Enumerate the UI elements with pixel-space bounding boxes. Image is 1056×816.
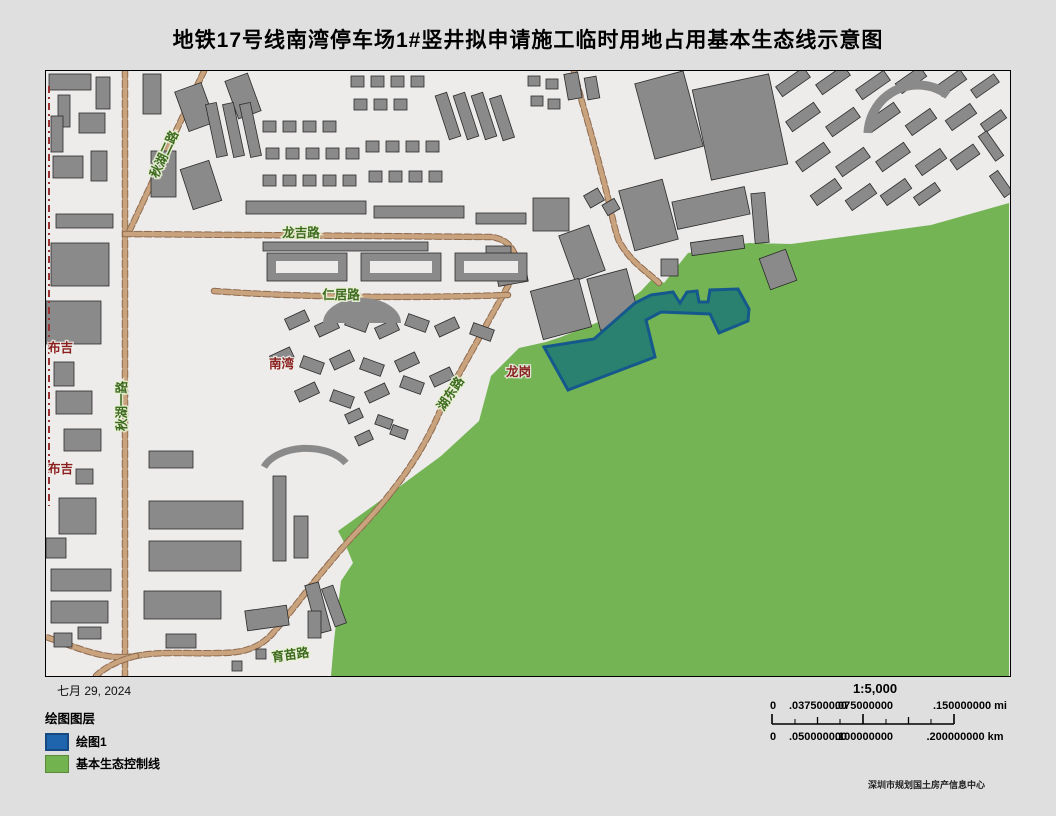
map-date: 七月 29, 2024 xyxy=(57,682,131,699)
page-title: 地铁17号线南湾停车场1#竖井拟申请施工临时用地占用基本生态线示意图 xyxy=(0,24,1056,54)
scale-km-3: .200000000 km xyxy=(900,731,1030,743)
place-label-longgang: 龙岗 xyxy=(505,364,531,379)
road-label-longji: 龙吉路 xyxy=(281,225,320,240)
legend-item-plot: 绘图1 xyxy=(45,732,160,751)
road-label-yumiao: 育苗路 xyxy=(271,644,311,664)
map-document-page: 地铁17号线南湾停车场1#竖井拟申请施工临时用地占用基本生态线示意图 秋湖二路 … xyxy=(0,0,1056,816)
place-label-buji-north: 布吉 xyxy=(48,340,73,355)
eco-color-swatch xyxy=(45,755,69,773)
road-label-qiuhu-1: 秋湖一路 xyxy=(114,381,129,432)
scale-ratio-text: 1:5,000 xyxy=(775,681,975,696)
map-canvas[interactable]: 秋湖二路 龙吉路 仁居路 秋湖一路 湖东路 育苗路 布吉 布吉 南湾 龙岗 xyxy=(46,71,1010,676)
map-frame: 秋湖二路 龙吉路 仁居路 秋湖一路 湖东路 育苗路 布吉 布吉 南湾 龙岗 xyxy=(45,70,1011,677)
plot-color-swatch xyxy=(45,733,69,751)
road-label-renju: 仁居路 xyxy=(322,287,360,302)
place-label-nanwan: 南湾 xyxy=(269,356,295,371)
scale-bar: 1:5,000 0 .037500000 .075000000 .1500000… xyxy=(745,681,1025,741)
attribution-text: 深圳市规划国土房产信息中心 xyxy=(800,778,985,791)
place-label-buji-south: 布吉 xyxy=(48,461,73,476)
legend-item-eco-line: 基本生态控制线 xyxy=(45,754,160,773)
scale-tick-bar xyxy=(771,713,957,726)
legend-item-label: 基本生态控制线 xyxy=(76,755,160,772)
legend: 绘图图层 绘图1 基本生态控制线 xyxy=(45,708,160,776)
legend-title: 绘图图层 xyxy=(45,708,160,727)
scale-mi-3: .150000000 mi xyxy=(905,700,1035,712)
legend-item-label: 绘图1 xyxy=(76,733,107,750)
